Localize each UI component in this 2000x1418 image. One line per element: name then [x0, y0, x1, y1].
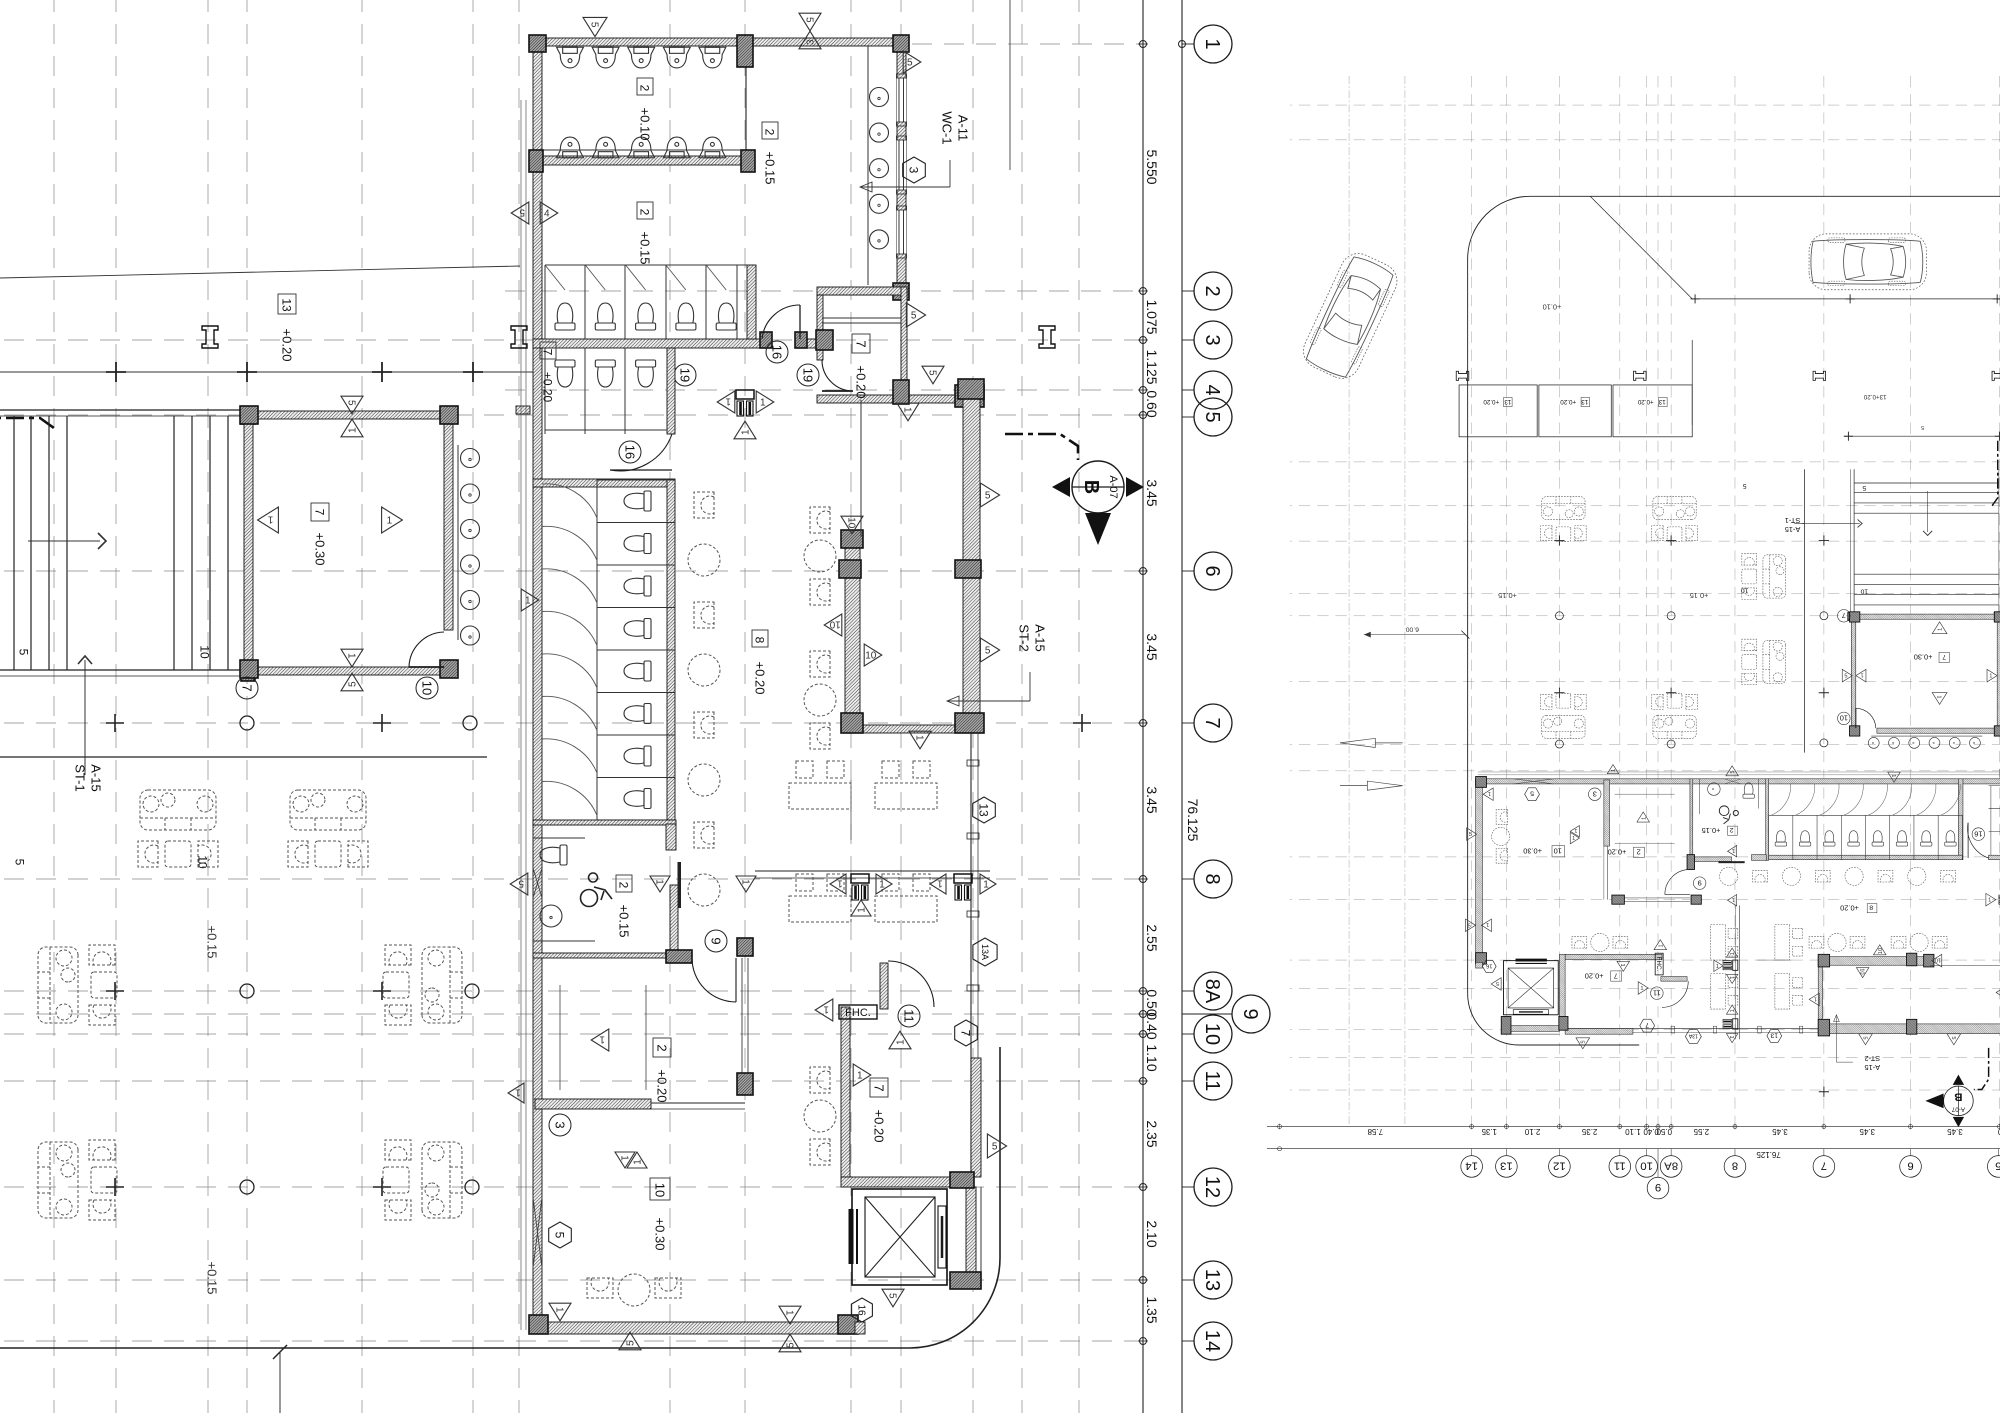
svg-text:2: 2 — [638, 85, 652, 92]
svg-text:A-15: A-15 — [88, 764, 103, 791]
svg-text:5: 5 — [17, 649, 31, 656]
svg-text:1: 1 — [913, 735, 924, 741]
svg-text:9: 9 — [708, 937, 723, 944]
svg-text:2.35: 2.35 — [1144, 1120, 1160, 1147]
svg-text:7: 7 — [1201, 717, 1223, 728]
svg-text:2: 2 — [638, 209, 652, 216]
svg-text:+0.30: +0.30 — [652, 1218, 667, 1251]
svg-text:1: 1 — [901, 407, 912, 413]
svg-text:10: 10 — [1201, 1023, 1223, 1045]
svg-text:1: 1 — [348, 427, 359, 433]
svg-text:1: 1 — [653, 879, 664, 885]
svg-text:FHC.: FHC. — [845, 1007, 871, 1019]
svg-text:19: 19 — [800, 368, 815, 382]
svg-text:1.075: 1.075 — [1144, 299, 1160, 334]
svg-text:7: 7 — [871, 1084, 886, 1091]
svg-text:5: 5 — [588, 22, 599, 28]
svg-text:1.10: 1.10 — [1144, 1044, 1160, 1071]
svg-text:5: 5 — [348, 681, 359, 687]
svg-text:+0.15: +0.15 — [762, 152, 777, 185]
svg-text:1: 1 — [823, 1003, 829, 1014]
svg-text:1: 1 — [387, 516, 393, 527]
svg-text:+0.20: +0.20 — [752, 662, 767, 695]
svg-text:5: 5 — [626, 1340, 637, 1346]
svg-text:1: 1 — [267, 513, 273, 524]
svg-text:+0.30: +0.30 — [312, 533, 327, 566]
svg-text:9: 9 — [1239, 1008, 1261, 1019]
svg-text:1: 1 — [741, 429, 752, 435]
svg-text:5: 5 — [803, 17, 814, 23]
svg-text:11: 11 — [1201, 1071, 1223, 1092]
svg-text:14: 14 — [1201, 1330, 1223, 1352]
svg-text:1: 1 — [345, 653, 356, 659]
svg-text:10: 10 — [845, 517, 856, 529]
svg-text:1.125: 1.125 — [1144, 349, 1160, 384]
svg-text:+0.15: +0.15 — [204, 1262, 219, 1295]
svg-text:+0.20: +0.20 — [871, 1110, 886, 1143]
svg-text:3: 3 — [552, 1121, 567, 1128]
svg-text:16: 16 — [855, 1304, 866, 1316]
svg-text:1: 1 — [618, 1155, 629, 1161]
svg-text:4: 4 — [544, 209, 550, 220]
svg-text:11: 11 — [901, 1009, 916, 1023]
svg-text:1.35: 1.35 — [1144, 1296, 1160, 1323]
svg-text:5: 5 — [911, 311, 917, 322]
svg-text:2: 2 — [763, 129, 777, 136]
svg-text:1: 1 — [857, 1071, 863, 1082]
svg-text:5: 5 — [553, 1232, 567, 1239]
svg-text:1: 1 — [983, 880, 989, 891]
svg-text:1: 1 — [896, 1039, 907, 1045]
svg-text:12: 12 — [1201, 1176, 1223, 1198]
svg-text:5.550: 5.550 — [1144, 149, 1160, 184]
svg-text:1: 1 — [937, 877, 943, 888]
svg-text:+0.20: +0.20 — [541, 372, 555, 403]
svg-text:7: 7 — [239, 684, 254, 691]
svg-text:2.10: 2.10 — [1144, 1220, 1160, 1247]
svg-text:10: 10 — [419, 681, 434, 695]
svg-text:13A: 13A — [980, 944, 990, 960]
svg-text:1: 1 — [760, 398, 766, 409]
svg-text:1: 1 — [599, 1033, 605, 1044]
svg-text:7: 7 — [959, 1030, 973, 1037]
svg-text:2: 2 — [1201, 285, 1223, 296]
svg-text:5: 5 — [786, 1342, 797, 1348]
svg-text:+0.20: +0.20 — [853, 366, 868, 399]
svg-text:16: 16 — [769, 345, 784, 359]
svg-text:+0.20: +0.20 — [279, 329, 294, 362]
svg-text:5: 5 — [985, 646, 991, 657]
svg-text:3: 3 — [907, 167, 921, 174]
svg-text:1: 1 — [725, 395, 731, 406]
svg-text:5: 5 — [345, 400, 356, 406]
svg-text:10: 10 — [829, 618, 841, 629]
svg-text:1: 1 — [837, 877, 843, 888]
svg-text:1: 1 — [783, 1310, 794, 1316]
svg-text:2: 2 — [654, 1044, 669, 1051]
svg-text:+0.15: +0.15 — [637, 232, 652, 265]
svg-text:WC-1: WC-1 — [939, 111, 954, 144]
svg-text:8: 8 — [1201, 873, 1223, 884]
svg-text:2: 2 — [617, 882, 631, 889]
svg-text:1: 1 — [525, 596, 531, 607]
svg-text:8A: 8A — [1201, 979, 1223, 1004]
svg-text:7: 7 — [313, 509, 327, 516]
svg-text:3: 3 — [806, 39, 817, 45]
svg-text:7: 7 — [541, 349, 555, 356]
svg-text:1: 1 — [553, 1307, 564, 1313]
svg-text:+0.10: +0.10 — [637, 108, 652, 141]
svg-text:10: 10 — [652, 1183, 667, 1197]
svg-text:ST-2: ST-2 — [1016, 624, 1031, 651]
svg-text:3.45: 3.45 — [1144, 633, 1160, 660]
svg-text:5: 5 — [886, 1293, 897, 1299]
svg-text:1: 1 — [515, 1086, 521, 1097]
svg-text:8: 8 — [753, 637, 767, 644]
svg-text:10: 10 — [865, 651, 877, 662]
svg-text:5: 5 — [985, 491, 991, 502]
svg-text:3: 3 — [1201, 334, 1223, 345]
svg-text:+0.15: +0.15 — [204, 926, 219, 959]
svg-text:13: 13 — [977, 803, 991, 817]
svg-text:+0.15: +0.15 — [616, 905, 631, 938]
svg-text:5: 5 — [518, 877, 524, 888]
svg-text:A-15: A-15 — [1032, 624, 1047, 651]
svg-text:A-07: A-07 — [1107, 475, 1119, 498]
svg-text:1: 1 — [1201, 38, 1223, 49]
svg-text:3.45: 3.45 — [1144, 786, 1160, 813]
svg-text:76.125: 76.125 — [1185, 799, 1201, 842]
svg-text:5: 5 — [926, 370, 937, 376]
svg-text:A-11: A-11 — [955, 115, 970, 142]
svg-text:6: 6 — [1201, 565, 1223, 576]
svg-text:B: B — [1080, 480, 1102, 494]
svg-text:5: 5 — [907, 58, 913, 69]
svg-text:5: 5 — [13, 859, 27, 866]
svg-text:13: 13 — [1201, 1269, 1223, 1291]
svg-text:1: 1 — [857, 907, 868, 913]
svg-text:4: 4 — [1201, 384, 1223, 395]
svg-text:3.45: 3.45 — [1144, 479, 1160, 506]
svg-text:1: 1 — [633, 1159, 644, 1165]
svg-text:13: 13 — [280, 298, 294, 312]
svg-text:19: 19 — [677, 368, 692, 382]
svg-text:10: 10 — [198, 645, 212, 659]
svg-text:7: 7 — [853, 340, 868, 347]
svg-text:5: 5 — [519, 206, 525, 217]
svg-text:16: 16 — [622, 445, 637, 459]
svg-text:+0.20: +0.20 — [654, 1070, 669, 1103]
svg-text:1: 1 — [739, 879, 750, 885]
svg-text:5: 5 — [992, 1142, 998, 1153]
svg-text:2.55: 2.55 — [1144, 924, 1160, 951]
svg-text:5: 5 — [1201, 411, 1223, 422]
